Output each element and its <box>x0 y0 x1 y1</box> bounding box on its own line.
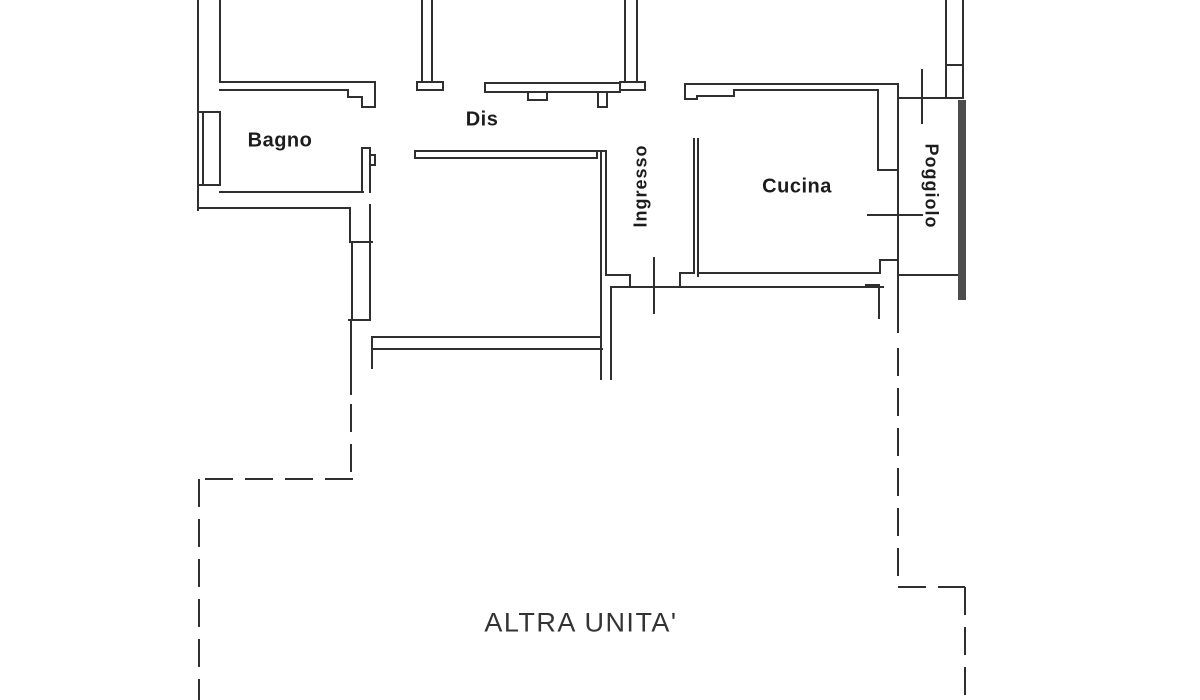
walls-solid <box>198 0 963 394</box>
room-label-bagno: Bagno <box>248 130 313 153</box>
floor-plan: Bagno Dis Ingresso Cucina Poggiolo ALTRA… <box>0 0 1200 700</box>
bagno-door-frame <box>362 148 375 242</box>
cucina-right-wall-window <box>868 84 922 332</box>
central-room-top-wall <box>415 151 606 158</box>
cucina-left-wall <box>694 139 698 276</box>
cucina-top-wall <box>685 84 898 99</box>
left-exterior-wall <box>198 0 220 210</box>
corridor-left-wall <box>601 151 630 379</box>
lower-door-frame <box>349 242 372 394</box>
room-label-dis: Dis <box>466 109 499 132</box>
other-unit-boundary-dashed <box>199 348 965 700</box>
room-label-poggiolo: Poggiolo <box>921 144 942 229</box>
dis-top-window <box>485 83 620 107</box>
room-label-cucina: Cucina <box>762 176 832 199</box>
bagno-bottom-wall <box>198 192 363 242</box>
central-room-bottom-wall <box>372 337 602 368</box>
top-wall-stub-left <box>417 0 443 90</box>
room-label-ingresso: Ingresso <box>631 144 652 227</box>
other-unit-label: ALTRA UNITA' <box>484 608 677 639</box>
bagno-top-wall <box>220 82 375 107</box>
cucina-bottom-wall <box>680 260 898 287</box>
top-wall-stub-right <box>946 0 963 98</box>
bagno-window <box>198 112 220 185</box>
lower-right-wall-stub <box>866 285 879 318</box>
floor-plan-drawing <box>0 0 1200 700</box>
top-wall-stub-middle <box>620 0 645 90</box>
corridor-bottom-wall <box>611 258 883 379</box>
